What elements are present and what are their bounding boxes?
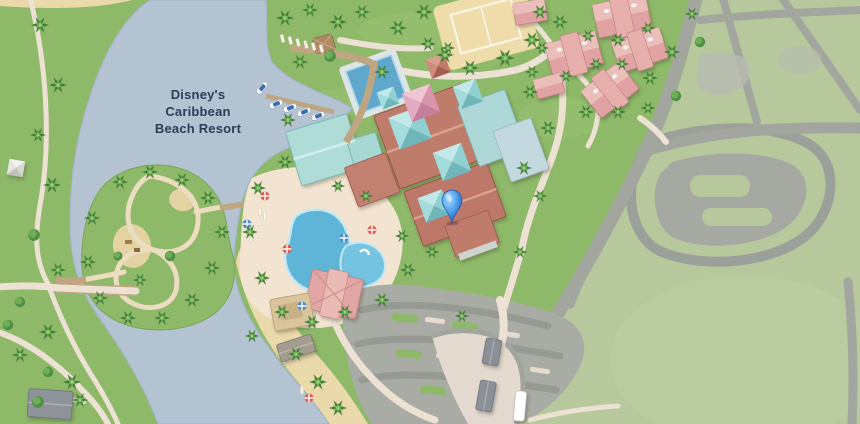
west-pavilion (7, 159, 26, 178)
resort-map-canvas[interactable] (0, 0, 860, 424)
resort-map[interactable]: Disney's Caribbean Beach Resort (0, 0, 860, 424)
caribbean-cay-island (82, 165, 235, 330)
bus (513, 391, 527, 422)
